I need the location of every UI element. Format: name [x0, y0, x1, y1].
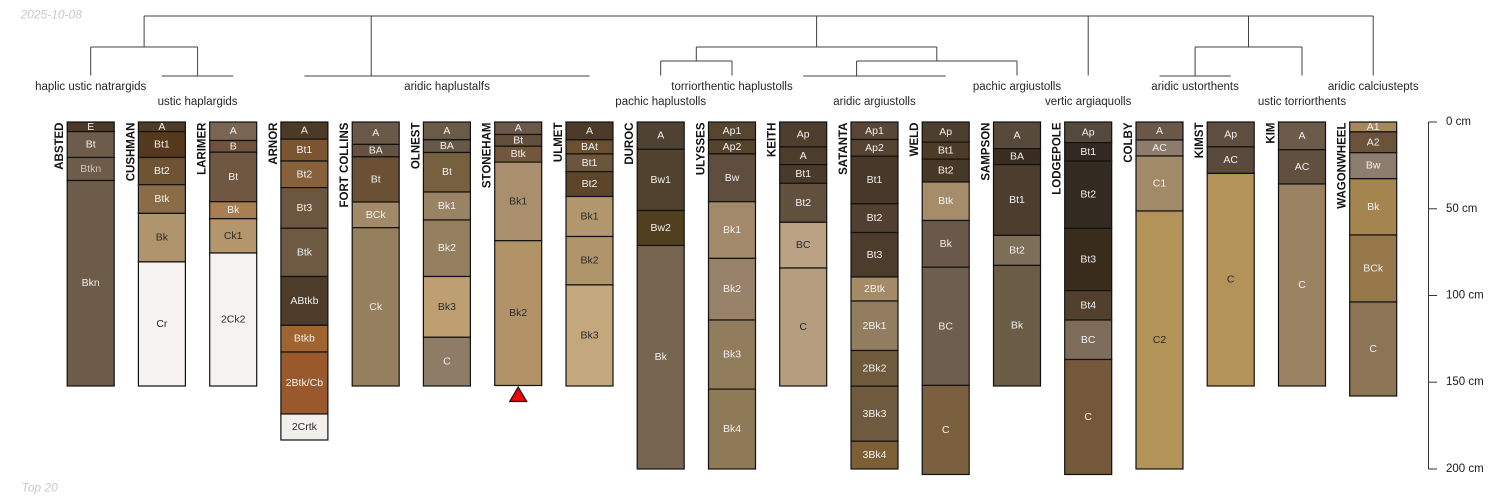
svg-text:Bt: Bt — [371, 173, 381, 185]
svg-text:Bt: Bt — [228, 171, 238, 183]
svg-text:BC: BC — [796, 239, 811, 251]
svg-text:Bk2: Bk2 — [438, 242, 456, 254]
svg-text:Ap1: Ap1 — [865, 125, 884, 137]
svg-text:Ck: Ck — [369, 301, 383, 313]
svg-text:BA: BA — [440, 140, 454, 152]
svg-text:Ap: Ap — [1082, 126, 1095, 138]
svg-text:Bw: Bw — [725, 172, 740, 184]
svg-text:Bk: Bk — [940, 238, 953, 250]
svg-text:A: A — [372, 127, 379, 139]
svg-text:Bt1: Bt1 — [938, 145, 954, 157]
svg-text:STONEHAM: STONEHAM — [482, 123, 494, 189]
svg-text:150 cm: 150 cm — [1446, 376, 1484, 388]
svg-text:Bk3: Bk3 — [438, 301, 456, 313]
svg-text:Bt1: Bt1 — [1080, 146, 1096, 158]
svg-text:ARNOR: ARNOR — [268, 122, 280, 165]
svg-text:Bt1: Bt1 — [582, 157, 598, 169]
svg-text:2025-10-08: 2025-10-08 — [20, 8, 83, 22]
svg-text:WELD: WELD — [909, 123, 921, 157]
svg-text:Bt1: Bt1 — [867, 174, 883, 186]
svg-text:Bt2: Bt2 — [582, 178, 598, 190]
svg-text:WAGONWHEEL: WAGONWHEEL — [1337, 123, 1349, 209]
svg-text:aridic ustorthents: aridic ustorthents — [1151, 81, 1239, 93]
svg-text:FORT COLLINS: FORT COLLINS — [339, 122, 351, 207]
svg-text:Bt2: Bt2 — [1009, 244, 1025, 256]
svg-text:aridic calciustepts: aridic calciustepts — [1328, 81, 1419, 93]
svg-text:2Bk2: 2Bk2 — [863, 362, 887, 374]
svg-text:Bk1: Bk1 — [723, 224, 741, 236]
svg-text:aridic argiustolls: aridic argiustolls — [833, 96, 916, 108]
svg-text:LARIMER: LARIMER — [197, 122, 209, 175]
svg-text:C: C — [799, 321, 807, 333]
svg-text:A: A — [657, 130, 664, 142]
svg-text:Btk: Btk — [154, 193, 170, 205]
svg-text:C: C — [1298, 279, 1306, 291]
svg-text:Bk1: Bk1 — [580, 211, 598, 223]
svg-text:Bk2: Bk2 — [580, 255, 598, 267]
svg-text:Bk: Bk — [227, 204, 240, 216]
svg-text:KIM: KIM — [1266, 123, 1278, 144]
svg-text:A: A — [1013, 129, 1020, 141]
svg-text:Bk: Bk — [1367, 201, 1380, 213]
svg-text:C: C — [1227, 274, 1235, 286]
svg-text:AC: AC — [1152, 142, 1167, 154]
svg-text:Btk: Btk — [297, 246, 313, 258]
svg-text:Bt2: Bt2 — [154, 165, 170, 177]
svg-text:BCk: BCk — [366, 209, 387, 221]
svg-text:LODGEPOLE: LODGEPOLE — [1052, 122, 1064, 195]
svg-text:ULYSSES: ULYSSES — [696, 122, 708, 175]
svg-text:Bt1: Bt1 — [795, 168, 811, 180]
svg-text:Bk1: Bk1 — [438, 200, 456, 212]
svg-text:2Btk: 2Btk — [864, 283, 886, 295]
svg-text:A: A — [800, 150, 807, 162]
svg-text:2Crtk: 2Crtk — [292, 421, 318, 433]
svg-text:Ap2: Ap2 — [723, 141, 742, 153]
svg-text:ABSTED: ABSTED — [54, 123, 66, 170]
svg-text:Ap1: Ap1 — [723, 125, 742, 137]
svg-text:ustic haplargids: ustic haplargids — [158, 96, 238, 108]
svg-text:B: B — [230, 140, 237, 152]
svg-text:pachic haplustolls: pachic haplustolls — [615, 96, 706, 108]
svg-text:pachic argiustolls: pachic argiustolls — [973, 81, 1061, 93]
svg-text:Btkn: Btkn — [80, 163, 101, 175]
svg-text:Bt2: Bt2 — [1080, 189, 1096, 201]
svg-text:BC: BC — [938, 320, 953, 332]
svg-text:Bt: Bt — [442, 166, 452, 178]
svg-text:BAt: BAt — [581, 141, 598, 153]
svg-text:50 cm: 50 cm — [1446, 203, 1477, 215]
svg-text:BA: BA — [1010, 151, 1024, 163]
svg-text:Bt: Bt — [513, 134, 523, 146]
svg-text:Btk: Btk — [938, 195, 954, 207]
svg-text:C2: C2 — [1153, 334, 1167, 346]
svg-text:SAMPSON: SAMPSON — [981, 123, 993, 181]
svg-text:3Bk4: 3Bk4 — [863, 449, 887, 461]
svg-text:Bw: Bw — [1366, 160, 1381, 172]
svg-text:Bt1: Bt1 — [1009, 194, 1025, 206]
svg-text:aridic haplustalfs: aridic haplustalfs — [404, 81, 490, 93]
svg-text:Bk: Bk — [655, 351, 668, 363]
svg-text:200 cm: 200 cm — [1446, 463, 1484, 475]
svg-text:DUROC: DUROC — [624, 123, 636, 165]
svg-text:Bk3: Bk3 — [723, 349, 741, 361]
svg-text:C: C — [942, 424, 950, 436]
svg-text:BCk: BCk — [1363, 263, 1384, 275]
svg-text:Bt2: Bt2 — [938, 165, 954, 177]
svg-text:A: A — [230, 125, 237, 137]
svg-text:Bt1: Bt1 — [154, 139, 170, 151]
svg-text:C: C — [443, 356, 451, 368]
svg-text:E: E — [87, 121, 94, 133]
svg-text:Bt3: Bt3 — [1080, 254, 1096, 266]
svg-text:OLNEST: OLNEST — [410, 123, 422, 170]
svg-text:Bt2: Bt2 — [297, 168, 313, 180]
svg-text:C: C — [1369, 343, 1377, 355]
svg-text:A1: A1 — [1367, 121, 1380, 133]
svg-text:Bt3: Bt3 — [297, 202, 313, 214]
svg-text:A: A — [1156, 125, 1163, 137]
svg-text:Bk2: Bk2 — [509, 307, 527, 319]
svg-text:Bk: Bk — [1011, 320, 1024, 332]
svg-text:100 cm: 100 cm — [1446, 290, 1484, 302]
svg-text:Btkb: Btkb — [294, 333, 315, 345]
svg-text:A: A — [515, 122, 522, 134]
svg-text:Ap2: Ap2 — [865, 142, 884, 154]
svg-text:Bt1: Bt1 — [297, 144, 313, 156]
svg-text:ustic torriorthents: ustic torriorthents — [1258, 96, 1346, 108]
svg-text:ABtkb: ABtkb — [290, 295, 318, 307]
svg-text:Bt2: Bt2 — [867, 212, 883, 224]
svg-text:Bk1: Bk1 — [509, 195, 527, 207]
svg-text:A: A — [1298, 130, 1305, 142]
svg-text:Ap: Ap — [1224, 128, 1237, 140]
svg-text:vertic argiaquolls: vertic argiaquolls — [1045, 96, 1132, 108]
svg-text:Bt: Bt — [86, 139, 96, 151]
svg-text:SATANTA: SATANTA — [838, 123, 850, 175]
svg-text:2Ck2: 2Ck2 — [221, 314, 246, 326]
svg-text:A: A — [443, 125, 450, 137]
svg-text:C: C — [1084, 411, 1092, 423]
svg-text:torriorthentic haplustolls: torriorthentic haplustolls — [671, 81, 793, 93]
svg-text:3Bk3: 3Bk3 — [863, 408, 887, 420]
svg-text:Top 20: Top 20 — [22, 481, 59, 495]
svg-text:C1: C1 — [1153, 178, 1167, 190]
svg-text:Bw2: Bw2 — [650, 222, 671, 234]
svg-text:2Btk/Cb: 2Btk/Cb — [286, 377, 324, 389]
svg-text:Bt3: Bt3 — [867, 249, 883, 261]
svg-text:Bk4: Bk4 — [723, 423, 741, 435]
svg-text:COLBY: COLBY — [1123, 122, 1135, 163]
svg-text:Bt2: Bt2 — [795, 197, 811, 209]
svg-text:A: A — [586, 125, 593, 137]
svg-text:Bt4: Bt4 — [1080, 299, 1096, 311]
svg-text:AC: AC — [1295, 161, 1310, 173]
svg-text:Bk3: Bk3 — [580, 329, 598, 341]
svg-text:Bkn: Bkn — [82, 277, 100, 289]
svg-text:haplic ustic natrargids: haplic ustic natrargids — [35, 81, 146, 93]
svg-text:Ap: Ap — [797, 128, 810, 140]
svg-text:A: A — [158, 121, 165, 133]
svg-text:Bk: Bk — [156, 232, 169, 244]
svg-text:A2: A2 — [1367, 136, 1380, 148]
svg-text:BC: BC — [1081, 334, 1096, 346]
svg-text:BA: BA — [369, 145, 383, 157]
svg-text:AC: AC — [1223, 154, 1238, 166]
svg-text:Bk2: Bk2 — [723, 283, 741, 295]
svg-text:KIMST: KIMST — [1194, 123, 1206, 159]
svg-text:A: A — [301, 125, 308, 137]
svg-text:Bw1: Bw1 — [650, 174, 671, 186]
svg-text:0 cm: 0 cm — [1446, 116, 1471, 128]
svg-text:ULMET: ULMET — [553, 123, 565, 163]
svg-text:KEITH: KEITH — [767, 123, 779, 158]
svg-text:Ap: Ap — [939, 126, 952, 138]
svg-text:Cr: Cr — [156, 318, 168, 330]
svg-text:Ck1: Ck1 — [224, 230, 243, 242]
svg-text:2Bk1: 2Bk1 — [863, 320, 887, 332]
svg-text:Btk: Btk — [511, 148, 527, 160]
svg-text:CUSHMAN: CUSHMAN — [125, 123, 137, 182]
